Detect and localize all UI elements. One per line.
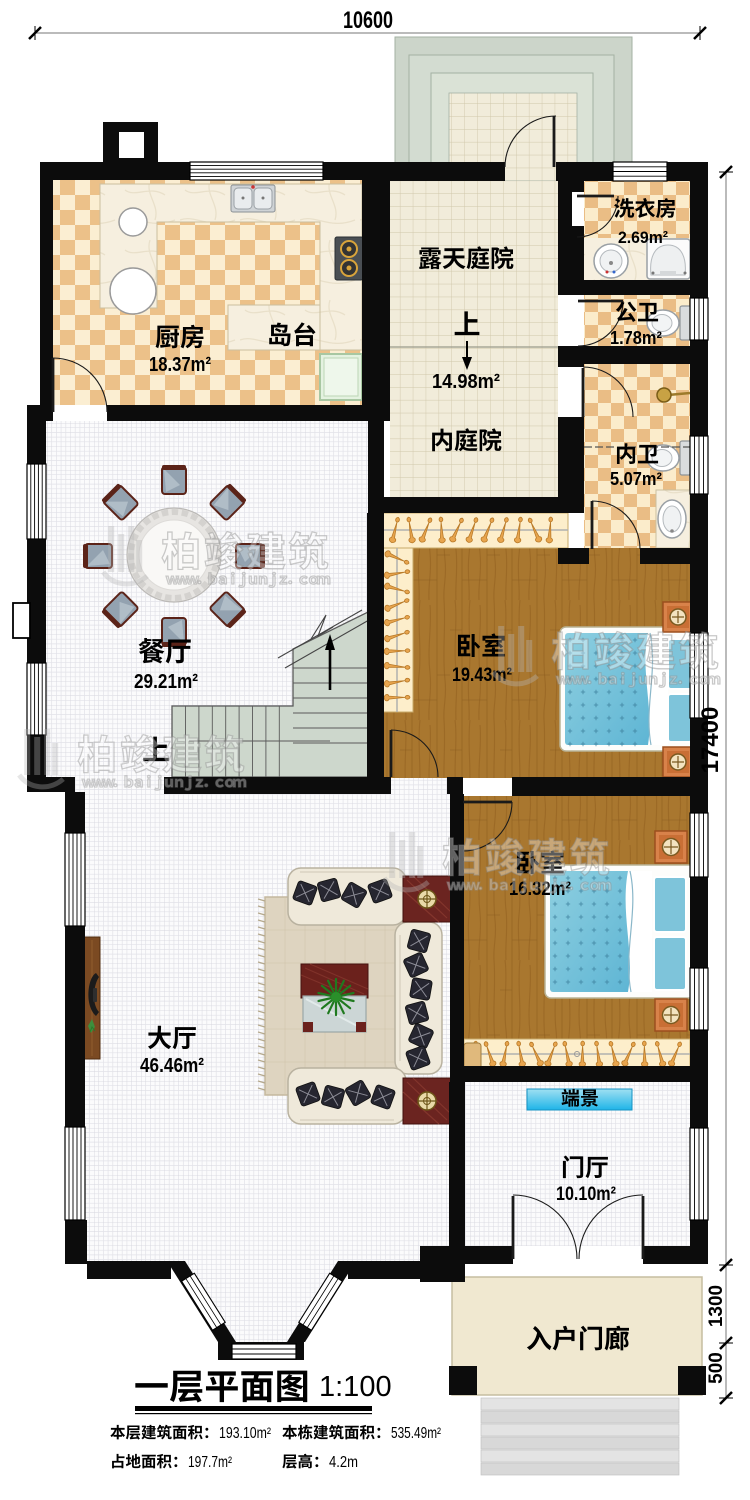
svg-text:4.2m: 4.2m xyxy=(329,1454,358,1471)
svg-text:14.98m²: 14.98m² xyxy=(432,371,500,393)
svg-text:10600: 10600 xyxy=(343,7,393,34)
svg-text:46.46m²: 46.46m² xyxy=(140,1055,204,1077)
svg-text:29.21m²: 29.21m² xyxy=(134,671,198,693)
svg-text:197.7m²: 197.7m² xyxy=(188,1454,232,1471)
svg-text:2.69m²: 2.69m² xyxy=(618,228,668,247)
svg-text:10.10m²: 10.10m² xyxy=(556,1184,616,1205)
svg-text:1300: 1300 xyxy=(706,1285,727,1327)
svg-text:500: 500 xyxy=(706,1352,727,1384)
svg-text:1.78m²: 1.78m² xyxy=(610,328,662,348)
svg-text:1:100: 1:100 xyxy=(319,1371,392,1403)
svg-text:18.37m²: 18.37m² xyxy=(149,354,211,376)
svg-text:193.10m²: 193.10m² xyxy=(219,1425,271,1442)
svg-text:17400: 17400 xyxy=(697,707,724,774)
svg-text:5.07m²: 5.07m² xyxy=(610,469,662,489)
svg-text:535.49m²: 535.49m² xyxy=(391,1425,441,1442)
